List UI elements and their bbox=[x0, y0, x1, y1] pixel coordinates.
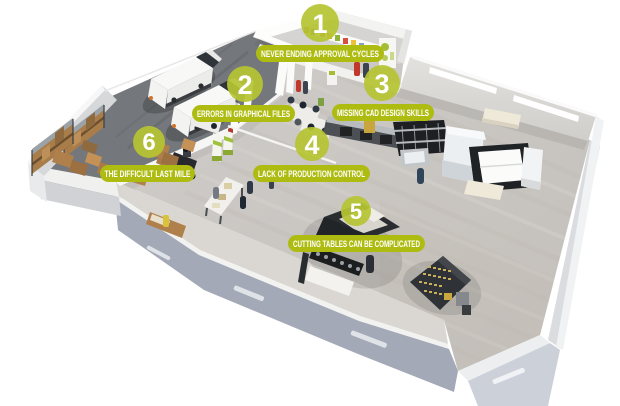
svg-text:1: 1 bbox=[312, 9, 327, 39]
svg-text:3: 3 bbox=[374, 69, 389, 99]
svg-text:MISSING CAD DESIGN SKILLS: MISSING CAD DESIGN SKILLS bbox=[337, 108, 429, 118]
svg-text:CUTTING TABLES CAN BE COMPLICA: CUTTING TABLES CAN BE COMPLICATED bbox=[293, 239, 420, 249]
svg-text:6: 6 bbox=[142, 129, 155, 156]
svg-text:LACK OF PRODUCTION CONTROL: LACK OF PRODUCTION CONTROL bbox=[258, 169, 365, 179]
svg-text:2: 2 bbox=[237, 70, 252, 100]
svg-text:ERRORS IN GRAPHICAL FILES: ERRORS IN GRAPHICAL FILES bbox=[197, 109, 290, 119]
svg-text:NEVER ENDING APPROVAL CYCLES: NEVER ENDING APPROVAL CYCLES bbox=[261, 49, 379, 59]
svg-text:5: 5 bbox=[350, 199, 362, 224]
svg-text:THE DIFFICULT LAST MILE: THE DIFFICULT LAST MILE bbox=[105, 169, 191, 179]
svg-text:4: 4 bbox=[304, 130, 319, 160]
